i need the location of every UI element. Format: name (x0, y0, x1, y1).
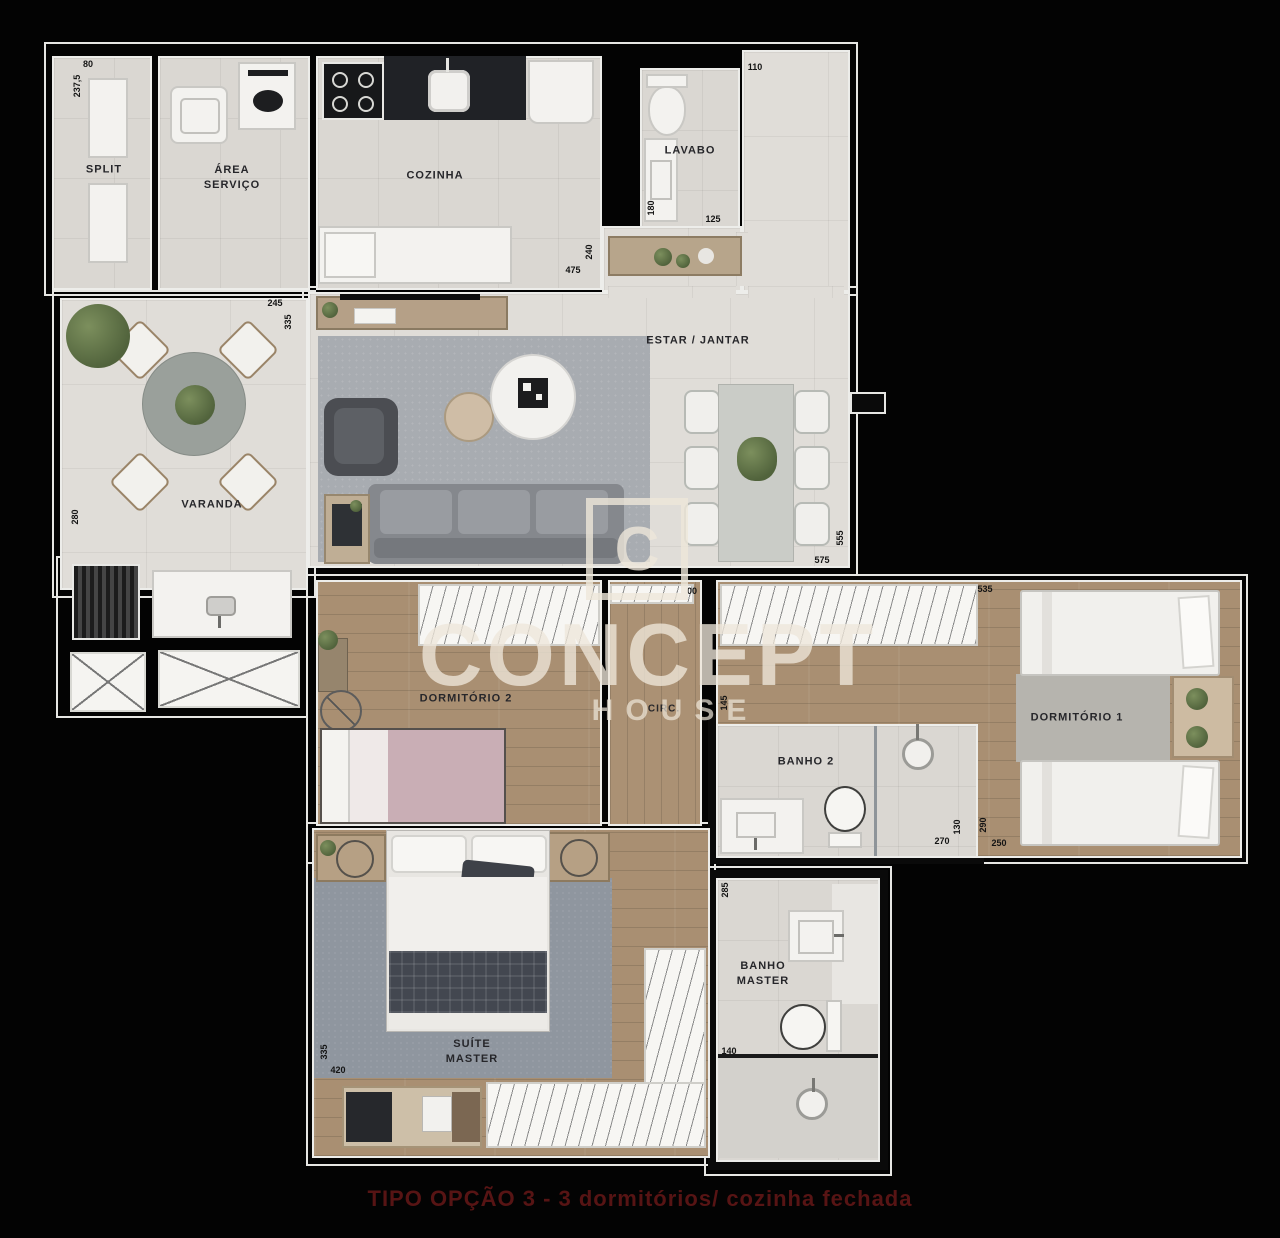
sideboard-decor (698, 248, 714, 264)
bed-dorm2 (320, 728, 506, 824)
sofa-back (374, 538, 618, 558)
dining-chair (794, 446, 830, 490)
label-area-servico: ÁREASERVIÇO (204, 163, 260, 193)
closet-dorm2 (418, 584, 600, 646)
dining-centerpiece (737, 437, 777, 481)
toilet (648, 86, 686, 136)
armchair-cushion (334, 408, 384, 464)
dim-label: 237,5 (72, 75, 82, 98)
blanket (389, 951, 547, 1013)
side-table (444, 392, 494, 442)
sideboard-plant (676, 254, 690, 268)
label-dormitorio1: DORMITÓRIO 1 (1031, 711, 1124, 726)
lamp (560, 839, 598, 877)
varanda-plant (66, 304, 130, 368)
dim-label: 575 (814, 555, 829, 565)
shower-partition (718, 1054, 878, 1058)
lavabo-basin (650, 160, 672, 200)
toilet-bowl (824, 786, 866, 832)
bm-sink (788, 910, 844, 962)
lamp (336, 840, 374, 878)
sideboard (608, 236, 742, 276)
tv-console (316, 296, 508, 330)
plan-caption: TIPO OPÇÃO 3 - 3 dormitórios/ cozinha fe… (0, 1186, 1280, 1212)
burner (358, 96, 374, 112)
dim-label: 250 (991, 838, 1006, 848)
dining-chair (684, 390, 720, 434)
dining-table (718, 384, 794, 562)
service-faucet-stem (218, 616, 221, 628)
dining-chair (684, 446, 720, 490)
shower-arm (812, 1078, 815, 1092)
tv (340, 294, 480, 300)
toilet-tank (646, 74, 688, 88)
bed-headboard (322, 730, 350, 822)
washer-door (253, 90, 283, 112)
foot-sheet (389, 1013, 547, 1029)
label-estar-jantar: ESTAR / JANTAR (646, 334, 749, 349)
dim-label: 245 (267, 298, 282, 308)
bed-duvet (388, 730, 504, 822)
kitchen-sink (428, 70, 470, 112)
dim-label: 270 (934, 836, 949, 846)
dim-label: 420 (330, 1065, 345, 1075)
ac-unit (88, 78, 128, 158)
sofa-cushion (380, 490, 452, 534)
bed-pillow (1178, 765, 1215, 839)
dim-label: 290 (978, 817, 988, 832)
dim-label: 80 (83, 59, 93, 69)
console-plant (1186, 726, 1208, 748)
dim-label: 555 (835, 530, 845, 545)
bm-basin (798, 920, 834, 954)
burner (332, 96, 348, 112)
laundry-basin (180, 98, 220, 134)
service-faucet (206, 596, 236, 616)
bm-faucet (834, 934, 844, 937)
kitchen-counter (384, 56, 526, 120)
shower-arm (916, 724, 919, 740)
duvet (389, 877, 547, 953)
grill (72, 564, 140, 640)
dim-label: 130 (952, 819, 962, 834)
toilet-tank (826, 1000, 842, 1052)
closet-suite-bottom (486, 1082, 706, 1148)
service-sink (152, 570, 292, 638)
decor-dot (523, 383, 531, 391)
corner-table (324, 494, 370, 564)
fridge (528, 60, 594, 124)
room-estar-upper (742, 50, 850, 292)
bed-dorm1 (1020, 760, 1220, 846)
washing-machine (238, 62, 296, 130)
kitchen-island (318, 226, 512, 284)
dim-label: 285 (720, 882, 730, 897)
closet-dorm1 (720, 584, 978, 646)
dim-label: 00 (687, 586, 697, 596)
dim-label: 280 (70, 509, 80, 524)
dresser-decor (422, 1096, 452, 1132)
console-plant (1186, 688, 1208, 710)
banho2-toilet (822, 786, 868, 850)
dim-label: 140 (721, 1046, 736, 1056)
label-cozinha: COZINHA (406, 169, 463, 184)
circ-shelf (610, 584, 694, 604)
table-plant (175, 385, 215, 425)
dim-label: 145 (719, 695, 729, 710)
dresser-box (452, 1092, 480, 1142)
shaft (158, 650, 300, 708)
sofa (368, 484, 624, 564)
bed-pillow (1178, 595, 1215, 669)
shower-head (796, 1088, 828, 1120)
coffee-table (490, 354, 576, 440)
console-box (354, 308, 396, 324)
bed-suite (386, 830, 550, 1032)
burner (332, 72, 348, 88)
label-varanda: VARANDA (181, 498, 242, 513)
suite-dresser (342, 1086, 482, 1148)
cooktop (322, 62, 384, 120)
console-plant (322, 302, 338, 318)
nightstand (548, 832, 610, 882)
glass-divider (874, 726, 877, 856)
corner-table-plant (350, 500, 362, 512)
label-dormitorio2: DORMITÓRIO 2 (420, 692, 513, 707)
ceiling-fan (320, 690, 362, 732)
faucet (446, 58, 449, 72)
dining-chair (684, 502, 720, 546)
dim-label: 535 (977, 584, 992, 594)
label-split: SPLIT (86, 163, 122, 178)
pillow (391, 835, 467, 873)
dim-label: 180 (646, 200, 656, 215)
banho2-counter (720, 798, 804, 854)
island-cabinet (324, 232, 376, 278)
bed-fold (1042, 592, 1052, 674)
banho2-faucet (754, 838, 757, 850)
label-suite-master: SUÍTEMASTER (446, 1037, 498, 1067)
washer-panel (248, 70, 288, 76)
bm-toilet (780, 1000, 844, 1052)
coffee-table-decor (518, 378, 548, 408)
floor-patch (748, 286, 844, 298)
nightstand (316, 834, 386, 882)
dorm1-console (1172, 676, 1234, 758)
dorm2-plant (318, 630, 338, 650)
shower-head (902, 738, 934, 770)
bed-dorm1 (1020, 590, 1220, 676)
dim-label: 335 (319, 1044, 329, 1059)
dim-label: 125 (705, 214, 720, 224)
banho2-basin (736, 812, 776, 838)
bed-sheet (350, 730, 388, 822)
label-banho2: BANHO 2 (778, 755, 835, 770)
shaft (70, 652, 146, 712)
dresser-tv (346, 1092, 392, 1142)
dim-label: 240 (584, 244, 594, 259)
nightstand-plant (320, 840, 336, 856)
toilet-bowl (780, 1004, 826, 1050)
sofa-cushion (536, 490, 608, 534)
wall-column-estar (850, 392, 886, 414)
dining-chair (794, 502, 830, 546)
sofa-cushion (458, 490, 530, 534)
decor-dot (536, 394, 542, 400)
dim-label: 335 (283, 314, 293, 329)
armchair (324, 398, 398, 476)
laundry-sink (170, 86, 228, 144)
dining-chair (794, 390, 830, 434)
label-lavabo: LAVABO (665, 144, 716, 159)
floor-plan: SPLIT ÁREASERVIÇO COZINHA LAVABO VARANDA… (0, 0, 1280, 1238)
varanda-table (142, 352, 246, 456)
label-banho-master: BANHOMASTER (737, 959, 789, 989)
toilet-tank (828, 832, 862, 848)
floor-patch (608, 286, 736, 298)
sideboard-plant (654, 248, 672, 266)
bed-fold (1042, 762, 1052, 844)
label-circ: CIRC. (648, 702, 680, 716)
dim-label: 110 (748, 62, 763, 72)
dim-label: 475 (565, 265, 580, 275)
burner (358, 72, 374, 88)
ac-unit (88, 183, 128, 263)
